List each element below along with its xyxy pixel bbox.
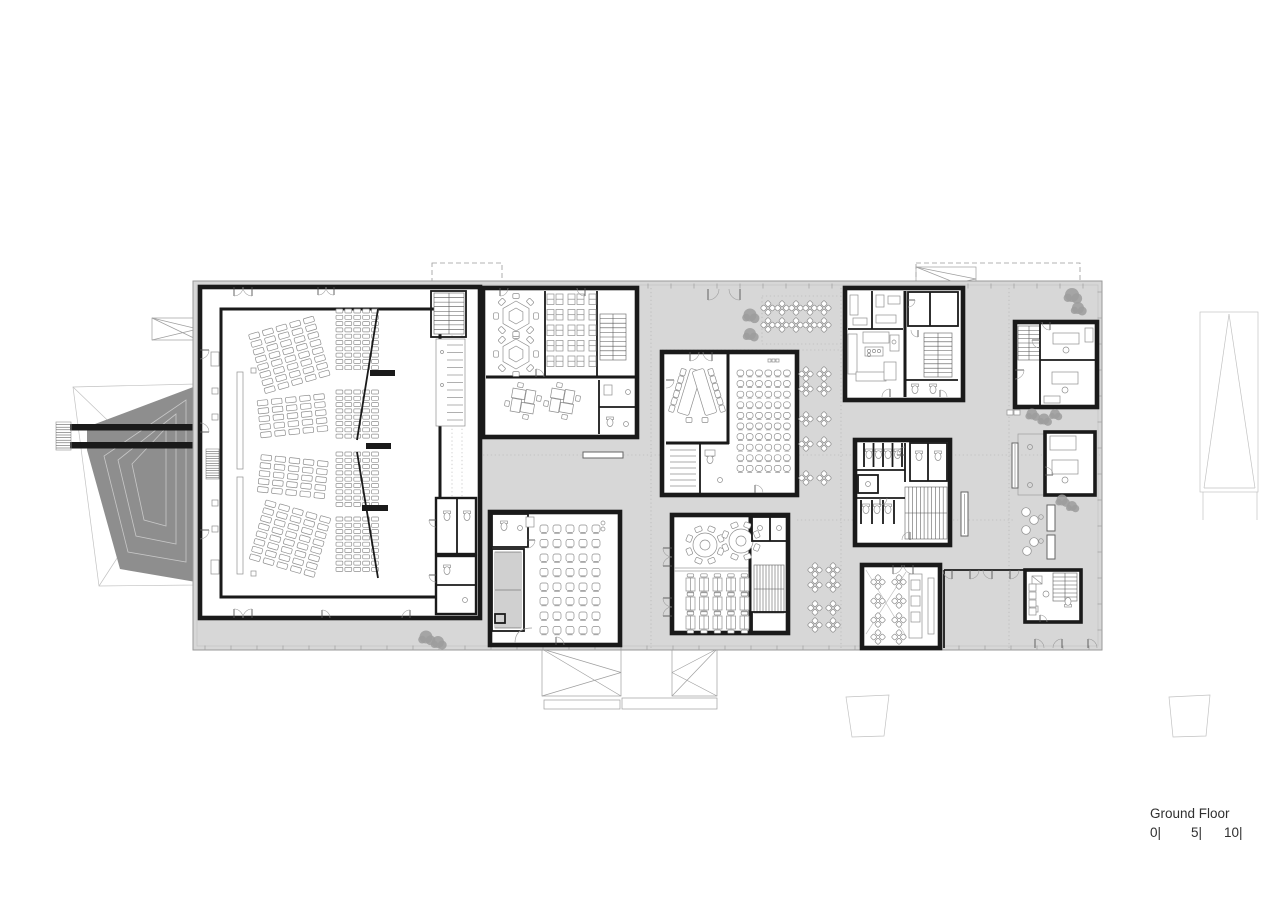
west-amphitheater	[56, 384, 196, 586]
tower-roof-edge	[1229, 314, 1255, 488]
chair	[592, 598, 600, 606]
chair	[746, 391, 753, 398]
desk-pair	[700, 574, 709, 595]
chair	[774, 444, 781, 451]
kitchen-block-north-east	[845, 288, 963, 400]
chair	[774, 455, 781, 462]
chair	[592, 612, 600, 620]
chair	[765, 434, 772, 441]
chair	[540, 569, 548, 577]
chair	[566, 554, 574, 562]
gray-wedge	[87, 386, 196, 582]
stair	[600, 314, 626, 360]
chair	[746, 381, 753, 388]
toilet	[916, 451, 923, 461]
bridge-wall	[70, 442, 196, 449]
chair	[592, 525, 600, 533]
chair	[784, 381, 791, 388]
chair	[774, 381, 781, 388]
desk-pair	[713, 612, 722, 633]
chair	[737, 465, 744, 472]
scale-tick-10: 10|	[1224, 825, 1243, 841]
chair	[540, 540, 548, 548]
toilet	[874, 504, 881, 514]
chair	[566, 598, 574, 606]
toilet	[912, 384, 919, 394]
floor-plan-canvas	[0, 0, 1280, 904]
chair	[774, 370, 781, 377]
lecture-block-south-west	[490, 512, 620, 645]
chair	[553, 525, 561, 533]
chair	[540, 598, 548, 606]
desk-pair	[686, 574, 695, 595]
toilet	[464, 511, 471, 521]
chair	[774, 465, 781, 472]
chair	[540, 554, 548, 562]
scale-tick-0: 0|	[1150, 825, 1161, 841]
chair	[579, 598, 587, 606]
tower-roof-edge	[1204, 314, 1229, 488]
chair	[746, 444, 753, 451]
desk-pair	[740, 574, 749, 595]
chair	[746, 423, 753, 430]
desk-pair	[713, 593, 722, 614]
scale-tick-5: 5|	[1191, 825, 1202, 841]
chair	[592, 554, 600, 562]
chair	[784, 391, 791, 398]
stair	[1018, 326, 1040, 360]
bridge-wall	[70, 424, 196, 431]
chair	[540, 627, 548, 635]
site-trapezoid	[1169, 695, 1210, 737]
desk-pair	[727, 612, 736, 633]
site-trapezoid	[846, 695, 889, 737]
chair	[774, 434, 781, 441]
chair	[765, 381, 772, 388]
toilet	[866, 449, 873, 459]
chair	[579, 525, 587, 533]
stair	[495, 552, 521, 628]
toilet	[885, 504, 892, 514]
chair	[737, 370, 744, 377]
east-tower	[1200, 312, 1258, 520]
desk-pair	[700, 593, 709, 614]
chair	[746, 455, 753, 462]
desk-pair	[740, 612, 749, 633]
chair	[553, 569, 561, 577]
stair	[905, 487, 947, 539]
desk-pair	[727, 574, 736, 595]
plan-title: Ground Floor	[1150, 806, 1246, 822]
chair	[756, 455, 763, 462]
office-block-north-east	[1007, 322, 1097, 415]
chair	[756, 444, 763, 451]
plan-legend: Ground Floor 0| 5| 10|	[1150, 806, 1246, 841]
chair	[566, 525, 574, 533]
classroom-block-north	[483, 288, 637, 437]
stair	[754, 565, 784, 613]
desk-pair	[700, 612, 709, 633]
seminar-block-center	[662, 352, 797, 495]
chair	[579, 540, 587, 548]
ramp	[152, 318, 198, 340]
chair	[784, 434, 791, 441]
chair	[737, 434, 744, 441]
chair	[774, 402, 781, 409]
chair	[784, 402, 791, 409]
ramp	[542, 649, 621, 696]
chair	[756, 381, 763, 388]
chair	[765, 455, 772, 462]
south-platform-band	[622, 698, 717, 709]
chair	[592, 583, 600, 591]
toilet	[444, 565, 451, 575]
grate	[56, 422, 71, 450]
chair	[592, 540, 600, 548]
toilet	[875, 449, 882, 459]
toilet	[863, 504, 870, 514]
chair	[579, 583, 587, 591]
chair	[737, 391, 744, 398]
chair	[566, 569, 574, 577]
toilet	[444, 511, 451, 521]
chair	[566, 612, 574, 620]
chair	[784, 412, 791, 419]
stair	[924, 333, 952, 377]
chair	[765, 402, 772, 409]
chair	[765, 391, 772, 398]
canopy-dashed-north-west	[432, 263, 502, 283]
chair	[737, 423, 744, 430]
chair	[737, 402, 744, 409]
cafe-block-south	[862, 565, 940, 648]
chair	[540, 583, 548, 591]
tables-block-south	[672, 515, 788, 633]
chair	[774, 423, 781, 430]
chair	[746, 465, 753, 472]
desk-pair	[740, 593, 749, 614]
stair	[434, 293, 464, 334]
south-platform-band	[544, 700, 620, 709]
ramp	[672, 649, 717, 696]
toilet	[607, 417, 614, 427]
chair	[784, 370, 791, 377]
chair	[746, 412, 753, 419]
chair	[774, 412, 781, 419]
utility-block-south-east	[1025, 570, 1081, 622]
auditorium-block	[200, 287, 480, 618]
chair	[553, 627, 561, 635]
chair	[592, 569, 600, 577]
chair	[566, 627, 574, 635]
chair	[579, 554, 587, 562]
chair	[756, 465, 763, 472]
chair	[756, 412, 763, 419]
chair	[737, 381, 744, 388]
toilet	[501, 521, 508, 531]
chair	[765, 370, 772, 377]
chair	[774, 391, 781, 398]
chair	[746, 434, 753, 441]
chair	[540, 612, 548, 620]
chair	[553, 540, 561, 548]
chair	[784, 465, 791, 472]
chair	[553, 554, 561, 562]
chair	[746, 402, 753, 409]
chair	[540, 525, 548, 533]
toilet	[935, 451, 942, 461]
stair	[1053, 573, 1077, 601]
tower-outline	[1200, 312, 1258, 492]
desk-pair	[686, 593, 695, 614]
chair	[756, 370, 763, 377]
chair	[756, 391, 763, 398]
chair	[566, 583, 574, 591]
desk-pair	[727, 593, 736, 614]
chair	[737, 444, 744, 451]
bridge-steps	[56, 422, 71, 450]
chair	[566, 540, 574, 548]
chair	[553, 612, 561, 620]
chair	[756, 402, 763, 409]
desk-pair	[686, 612, 695, 633]
chair	[765, 423, 772, 430]
chair	[784, 423, 791, 430]
chair	[579, 612, 587, 620]
chair	[592, 627, 600, 635]
chair	[553, 598, 561, 606]
chair	[737, 412, 744, 419]
chair	[784, 455, 791, 462]
scale-bar: 0| 5| 10|	[1150, 825, 1246, 841]
wc-block-center-east	[855, 440, 950, 545]
chair	[746, 370, 753, 377]
chair	[579, 627, 587, 635]
chair	[784, 444, 791, 451]
desk-pair	[713, 574, 722, 595]
chair	[756, 434, 763, 441]
chair	[765, 444, 772, 451]
toilet	[894, 449, 901, 459]
chair	[579, 569, 587, 577]
chair	[756, 423, 763, 430]
chair	[765, 465, 772, 472]
toilet	[930, 384, 937, 394]
chair	[765, 412, 772, 419]
toilet	[885, 449, 892, 459]
toilet	[1065, 598, 1072, 608]
chair	[737, 455, 744, 462]
seat-bank	[336, 452, 378, 506]
chair	[553, 583, 561, 591]
